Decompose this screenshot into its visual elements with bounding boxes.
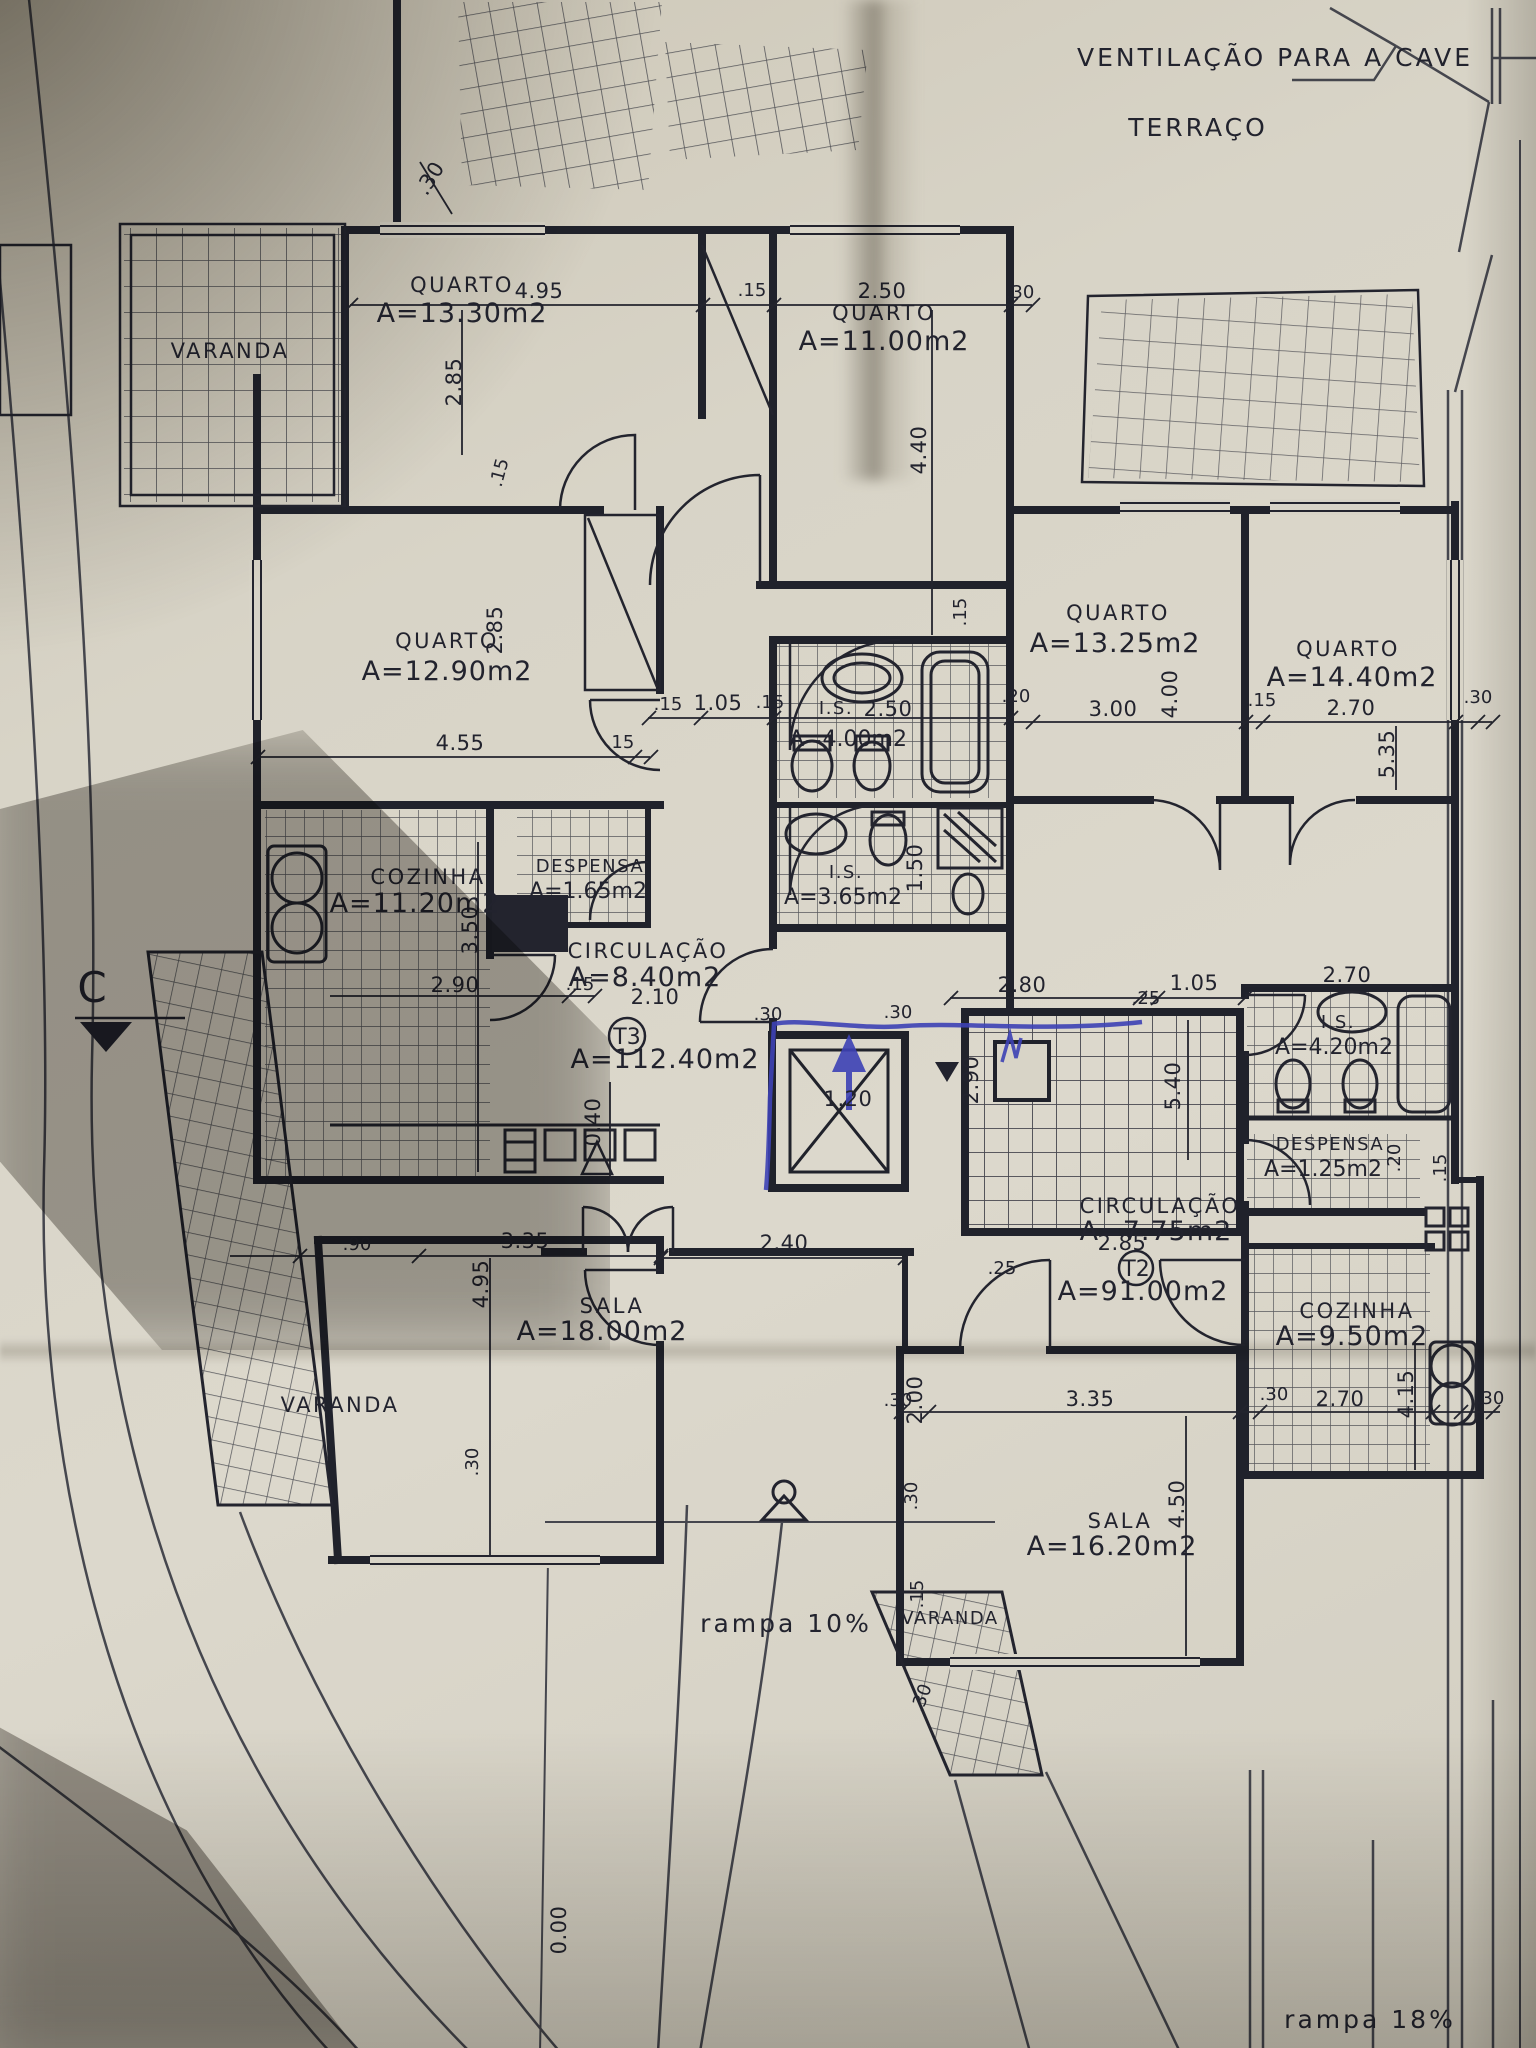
dim: .30 xyxy=(1260,1384,1289,1405)
room-varanda-tl: VARANDA xyxy=(171,339,290,363)
room-despensa-t2: DESPENSA xyxy=(1276,1134,1384,1155)
dim: 1.05 xyxy=(694,691,743,715)
dim: 3.50 xyxy=(458,906,482,955)
room-quarto1440: QUARTO xyxy=(1296,637,1400,661)
dim: 4.00 xyxy=(1158,670,1182,719)
dim: 2.70 xyxy=(1323,963,1372,987)
room-varanda-left: VARANDA xyxy=(281,1393,400,1417)
dim: .30 xyxy=(1476,1388,1505,1409)
dim: 2.85 xyxy=(442,358,466,407)
dim: 1.05 xyxy=(1170,971,1219,995)
dim: 5.35 xyxy=(1375,730,1399,779)
dim: 2.50 xyxy=(858,279,907,303)
t3-area: A=112.40m2 xyxy=(570,1044,759,1075)
dim: .25 xyxy=(1132,988,1161,1009)
dim: 4.95 xyxy=(515,279,564,303)
dim: 4.95 xyxy=(469,1260,493,1309)
dim: 2.50 xyxy=(864,697,913,721)
room-circulacao-t3: CIRCULAÇÃO xyxy=(568,937,729,963)
dim: 2.85 xyxy=(483,606,507,655)
dim: .30 xyxy=(411,157,450,199)
dim: .30 xyxy=(754,1004,783,1025)
dim: .30 xyxy=(884,1002,913,1023)
rampa18-label: rampa 18% xyxy=(1284,2005,1456,2034)
dim: 3.35 xyxy=(1066,1387,1115,1411)
dim: .15 xyxy=(907,1580,928,1609)
room-sala-t3: SALA xyxy=(580,1294,645,1318)
area-quarto1325: A=13.25m2 xyxy=(1030,628,1201,659)
area-quarto1440: A=14.40m2 xyxy=(1267,662,1438,693)
floor-plan-drawing: C VENTILAÇÃO PARA A CAVE TERRAÇO rampa 1… xyxy=(0,0,1536,2048)
dim: 2.70 xyxy=(1327,696,1376,720)
dim: .15 xyxy=(756,692,785,713)
section-c-label: C xyxy=(77,963,106,1012)
dim: 2.00 xyxy=(903,1376,927,1425)
room-circulacao-t2: CIRCULAÇÃO xyxy=(1080,1192,1241,1218)
area-sala-t3: A=18.00m2 xyxy=(517,1316,688,1347)
area-cozinha-t2: A=9.50m2 xyxy=(1276,1321,1429,1352)
area-is400: A=4.00m2 xyxy=(789,727,907,752)
dim: 4.40 xyxy=(907,426,931,475)
room-cozinha-t3: COZINHA xyxy=(370,865,485,889)
dim: .20 xyxy=(1002,686,1031,707)
dim: .15 xyxy=(1430,1154,1451,1183)
dim: .15 xyxy=(654,694,683,715)
dim: 2.40 xyxy=(760,1231,809,1255)
room-cozinha-t2: COZINHA xyxy=(1299,1299,1414,1323)
ventilacao-label: VENTILAÇÃO PARA A CAVE xyxy=(1077,42,1473,72)
dim: 2.85 xyxy=(1098,1231,1147,1255)
dim: 2.80 xyxy=(998,973,1047,997)
dim: 3.00 xyxy=(1089,697,1138,721)
room-is420: I.S. xyxy=(1321,1012,1355,1033)
room-sala-t2: SALA xyxy=(1088,1509,1153,1533)
room-quarto1100: QUARTO xyxy=(832,301,936,325)
room-despensa-t3: DESPENSA xyxy=(536,856,644,877)
dim: 4.15 xyxy=(1394,1370,1418,1419)
dim: 3.35 xyxy=(501,1229,550,1253)
dim: 2.90 xyxy=(959,1056,983,1105)
floorplan-photo: C VENTILAÇÃO PARA A CAVE TERRAÇO rampa 1… xyxy=(0,0,1536,2048)
room-quarto1325: QUARTO xyxy=(1066,601,1170,625)
room-is365: I.S. xyxy=(829,862,863,883)
dim: 1.20 xyxy=(824,1087,873,1111)
dim: .15 xyxy=(1248,690,1277,711)
dim: 2.90 xyxy=(431,973,480,997)
dim: .30 xyxy=(462,1448,483,1477)
room-is400: I.S. xyxy=(819,698,853,719)
terraco-label: TERRAÇO xyxy=(1127,113,1268,142)
area-quarto1290: A=12.90m2 xyxy=(362,656,533,687)
dim: 5.40 xyxy=(1161,1062,1185,1111)
dim: .15 xyxy=(486,456,514,489)
area-is365: A=3.65m2 xyxy=(784,885,902,910)
dim: .30 xyxy=(1006,282,1035,303)
t2-area: A=91.00m2 xyxy=(1058,1276,1229,1307)
dim: 2.70 xyxy=(1316,1387,1365,1411)
area-is420: A=4.20m2 xyxy=(1275,1035,1393,1060)
dim: .15 xyxy=(950,598,971,627)
dim: .15 xyxy=(606,732,635,753)
dim: .30 xyxy=(901,1482,922,1511)
dim: 1.50 xyxy=(903,844,927,893)
dim: .25 xyxy=(988,1258,1017,1279)
area-sala-t2: A=16.20m2 xyxy=(1027,1531,1198,1562)
area-quarto1100: A=11.00m2 xyxy=(799,326,970,357)
dim: .15 xyxy=(738,280,767,301)
dim: 4.55 xyxy=(436,731,485,755)
area-despensa-t3: A=1.65m2 xyxy=(529,879,647,904)
dim: .15 xyxy=(566,974,595,995)
level-040-label: 0.40 xyxy=(581,1098,605,1147)
dim: .30 xyxy=(1464,687,1493,708)
dim: .20 xyxy=(1384,1144,1405,1173)
dim: 4.50 xyxy=(1165,1480,1189,1529)
rampa10-label: rampa 10% xyxy=(700,1609,872,1638)
dim: .90 xyxy=(343,1234,372,1255)
area-despensa-t2: A=1.25m2 xyxy=(1264,1157,1382,1182)
level-zero-label: 0.00 xyxy=(547,1906,571,1955)
dim: 2.10 xyxy=(631,985,680,1009)
level-marker xyxy=(762,1481,806,1520)
room-varanda-bottom: VARANDA xyxy=(901,1608,998,1629)
room-quarto1330: QUARTO xyxy=(410,273,514,297)
